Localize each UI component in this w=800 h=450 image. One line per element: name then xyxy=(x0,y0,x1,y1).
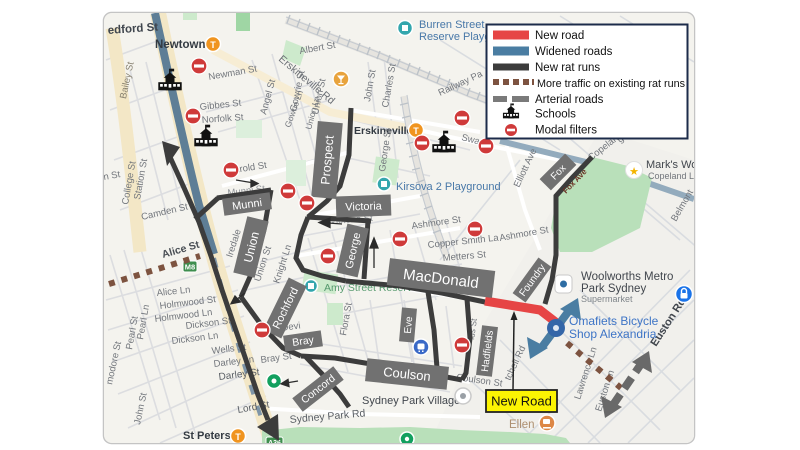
svg-text:Shop Alexandria: Shop Alexandria xyxy=(569,327,657,341)
svg-text:T: T xyxy=(210,40,216,50)
svg-text:Schools: Schools xyxy=(535,109,576,121)
svg-text:Omafiets Bicycle: Omafiets Bicycle xyxy=(569,314,659,328)
svg-text:Kirsova 2 Playground: Kirsova 2 Playground xyxy=(396,181,501,193)
svg-text:Supermarket: Supermarket xyxy=(581,294,633,304)
svg-text:New road: New road xyxy=(535,30,584,42)
svg-text:Arterial roads: Arterial roads xyxy=(535,94,604,106)
svg-text:Sydney Park Village: Sydney Park Village xyxy=(362,395,460,407)
svg-text:Victoria: Victoria xyxy=(345,200,383,213)
svg-text:T: T xyxy=(235,432,241,442)
svg-text:Woolworths Metro: Woolworths Metro xyxy=(581,271,673,283)
svg-text:T: T xyxy=(413,126,419,136)
svg-text:Burren Street: Burren Street xyxy=(419,19,484,31)
svg-text:Newtown: Newtown xyxy=(155,39,205,51)
svg-text:M8: M8 xyxy=(185,263,195,272)
svg-text:Widened roads: Widened roads xyxy=(535,46,613,58)
svg-text:★: ★ xyxy=(629,166,639,178)
svg-text:More traffic on existing rat r: More traffic on existing rat runs xyxy=(537,78,686,90)
svg-text:New rat runs: New rat runs xyxy=(535,62,600,74)
svg-text:St Peters: St Peters xyxy=(183,430,231,442)
svg-text:Reserve Playg: Reserve Playg xyxy=(419,31,491,43)
svg-text:Mark's Wo: Mark's Wo xyxy=(646,159,697,171)
svg-text:Eve: Eve xyxy=(403,316,415,335)
svg-text:Copeland Ln: Copeland Ln xyxy=(648,171,699,181)
svg-text:New Road: New Road xyxy=(491,394,552,409)
svg-text:Ellen: Ellen xyxy=(509,419,535,431)
svg-text:Modal filters: Modal filters xyxy=(535,125,597,137)
